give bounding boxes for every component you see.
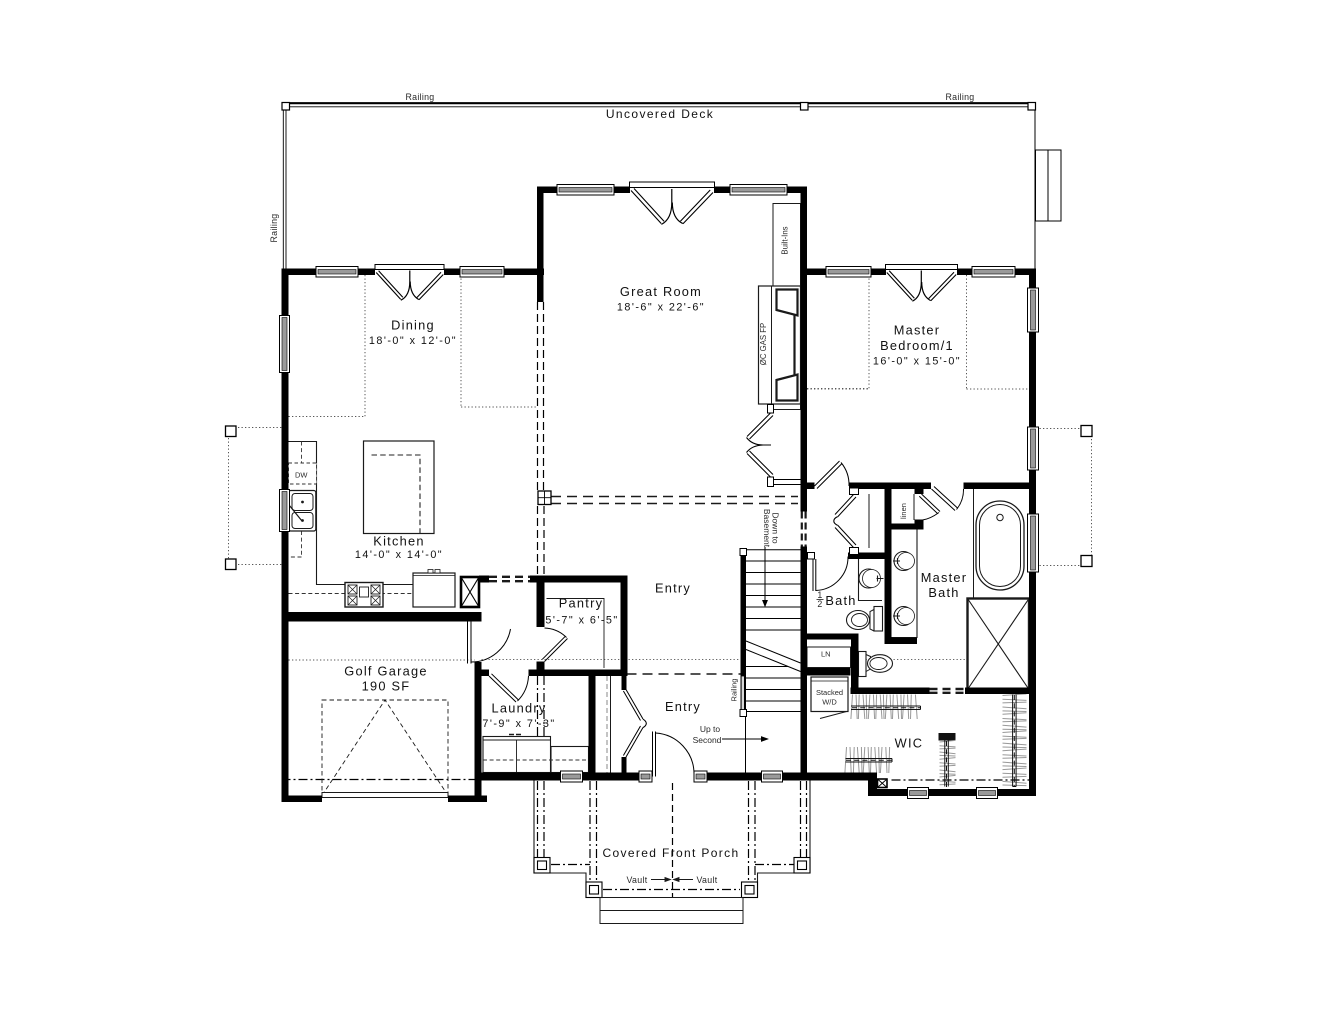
svg-text:Covered Front Porch: Covered Front Porch	[602, 846, 739, 860]
svg-text:Vault: Vault	[627, 875, 648, 885]
svg-text:2: 2	[817, 599, 822, 609]
svg-text:Stacked: Stacked	[816, 688, 843, 697]
svg-text:Railing: Railing	[946, 92, 975, 102]
svg-text:Built-Ins: Built-Ins	[781, 226, 790, 254]
svg-text:LN: LN	[821, 650, 831, 659]
svg-text:Golf Garage: Golf Garage	[344, 664, 427, 679]
svg-text:Dining: Dining	[391, 318, 435, 333]
svg-text:18'-0" x 12'-0": 18'-0" x 12'-0"	[369, 335, 457, 347]
svg-text:Kitchen: Kitchen	[373, 534, 424, 549]
svg-text:14'-0" x 14'-0": 14'-0" x 14'-0"	[355, 549, 443, 561]
svg-text:Master: Master	[921, 570, 968, 585]
svg-text:W/D: W/D	[822, 698, 837, 707]
svg-text:Bath: Bath	[928, 585, 959, 600]
svg-text:190 SF: 190 SF	[362, 679, 411, 694]
svg-text:ØC GAS FP: ØC GAS FP	[759, 323, 768, 365]
svg-text:Basement: Basement	[762, 509, 772, 548]
svg-text:DW: DW	[295, 471, 308, 480]
svg-text:Master: Master	[894, 323, 941, 338]
svg-text:Great Room: Great Room	[620, 284, 702, 299]
svg-text:Bedroom/1: Bedroom/1	[880, 338, 954, 353]
svg-text:Railing: Railing	[730, 679, 739, 702]
svg-text:Railing: Railing	[269, 214, 279, 243]
svg-text:Uncovered Deck: Uncovered Deck	[606, 107, 714, 121]
svg-text:5'-7" x 6'-5": 5'-7" x 6'-5"	[545, 615, 618, 627]
svg-text:Entry: Entry	[665, 699, 701, 714]
svg-text:16'-0" x 15'-0": 16'-0" x 15'-0"	[873, 356, 961, 368]
svg-text:Bath: Bath	[825, 593, 856, 608]
svg-text:Second: Second	[693, 735, 722, 745]
svg-text:linen: linen	[899, 503, 908, 519]
svg-text:18'-6" x 22'-6": 18'-6" x 22'-6"	[617, 302, 705, 314]
svg-text:Up to: Up to	[700, 724, 721, 734]
svg-text:7'-9" x 7'-3": 7'-9" x 7'-3"	[482, 718, 555, 730]
svg-text:Laundry: Laundry	[492, 701, 547, 716]
svg-text:Vault: Vault	[697, 875, 718, 885]
svg-text:WIC: WIC	[895, 736, 924, 751]
svg-text:Pantry: Pantry	[559, 596, 604, 611]
svg-text:Entry: Entry	[655, 581, 691, 596]
svg-text:Railing: Railing	[406, 92, 435, 102]
